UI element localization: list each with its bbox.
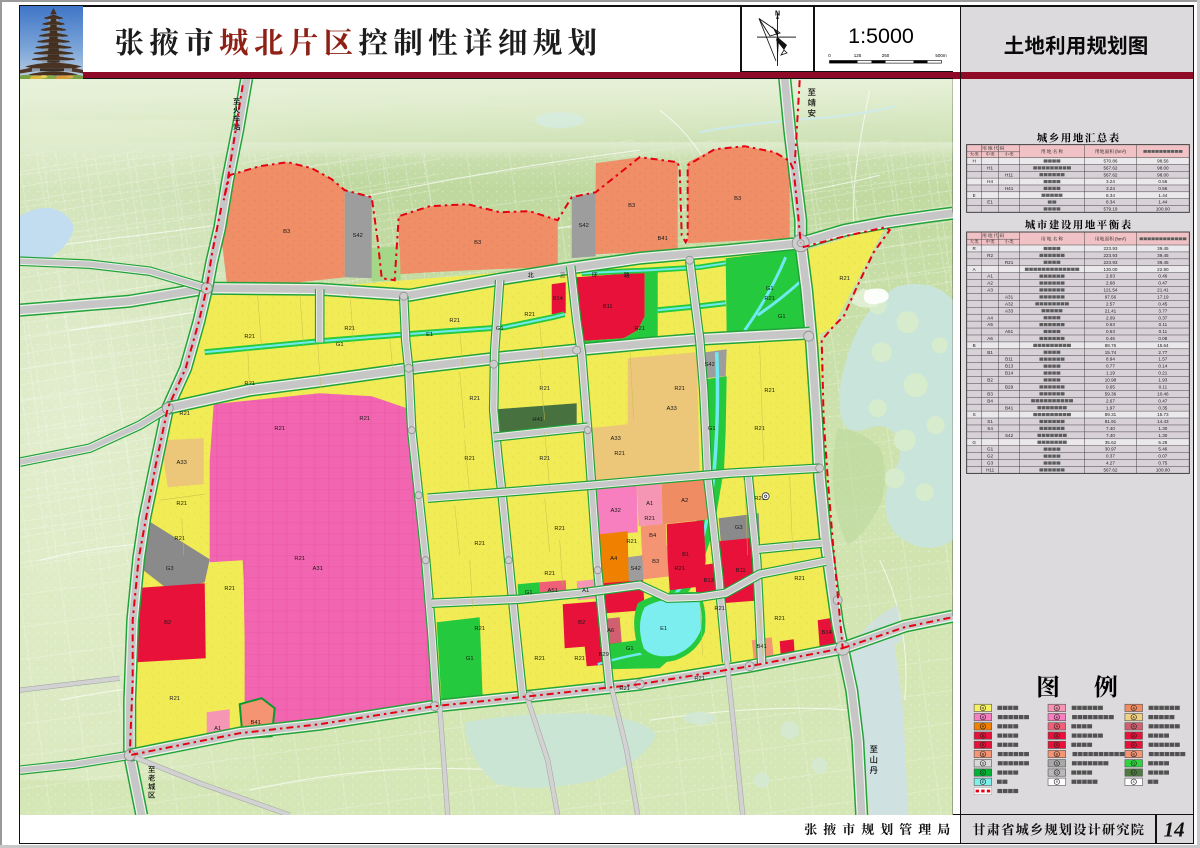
svg-text:0.77: 0.77 [1106, 364, 1115, 369]
svg-text:B41: B41 [757, 644, 767, 650]
svg-text:E1: E1 [426, 332, 433, 338]
svg-text:22.90: 22.90 [1157, 267, 1169, 272]
svg-text:S: S [973, 412, 976, 417]
svg-text:0.37: 0.37 [1106, 454, 1115, 459]
svg-text:R21: R21 [695, 676, 706, 682]
svg-text:(hm²): (hm²) [1115, 236, 1126, 241]
svg-text:(hm²): (hm²) [1115, 149, 1126, 154]
svg-text:G1: G1 [778, 314, 786, 320]
svg-text:4.27: 4.27 [1106, 460, 1115, 465]
svg-text:A51: A51 [1005, 329, 1014, 334]
svg-text:8.34: 8.34 [1106, 193, 1115, 198]
svg-text:39.45: 39.45 [1157, 246, 1169, 251]
svg-text:2.09: 2.09 [1106, 315, 1115, 320]
svg-text:B4: B4 [649, 533, 657, 539]
svg-text:B14: B14 [553, 296, 564, 302]
svg-text:H11: H11 [1005, 172, 1014, 177]
svg-text:R21: R21 [295, 556, 306, 562]
svg-text:A6: A6 [607, 628, 614, 634]
svg-text:567.62: 567.62 [1103, 467, 1117, 472]
svg-text:B1: B1 [987, 350, 993, 355]
svg-text:1.44: 1.44 [1158, 199, 1167, 204]
svg-text:A33: A33 [177, 460, 187, 466]
svg-text:R21: R21 [715, 606, 726, 612]
svg-text:R21: R21 [465, 456, 476, 462]
svg-text:G: G [972, 440, 976, 445]
svg-text:A6: A6 [987, 336, 993, 341]
svg-text:0.11: 0.11 [1159, 322, 1168, 327]
svg-text:B11: B11 [603, 304, 613, 310]
svg-text:14: 14 [1163, 817, 1184, 841]
svg-text:1.57: 1.57 [1158, 357, 1167, 362]
svg-text:125: 125 [854, 53, 862, 58]
svg-text:2.77: 2.77 [1158, 350, 1167, 355]
svg-text:H4: H4 [987, 179, 993, 184]
svg-text:A33: A33 [611, 436, 621, 442]
svg-text:H11: H11 [986, 467, 995, 472]
svg-text:B: B [973, 343, 976, 348]
svg-text:0.63: 0.63 [1106, 329, 1115, 334]
svg-text:88.76: 88.76 [1105, 343, 1117, 348]
svg-text:G: G [1055, 771, 1058, 775]
svg-text:R21: R21 [1005, 260, 1014, 265]
svg-text:E1: E1 [987, 199, 993, 204]
svg-text:1.93: 1.93 [1158, 377, 1167, 382]
svg-text:B41: B41 [658, 236, 668, 242]
svg-text:223.93: 223.93 [1103, 253, 1117, 258]
svg-text:R21: R21 [245, 334, 256, 340]
svg-text:0: 0 [828, 53, 831, 58]
svg-text:579.19: 579.19 [1103, 206, 1117, 211]
svg-text:0.14: 0.14 [1158, 364, 1167, 369]
svg-text:0.47: 0.47 [1158, 398, 1167, 403]
svg-text:G3: G3 [166, 566, 174, 572]
svg-text:A5: A5 [987, 322, 993, 327]
svg-text:G3: G3 [987, 460, 994, 465]
svg-text:R21: R21 [175, 536, 186, 542]
svg-text:7.40: 7.40 [1106, 426, 1115, 431]
svg-text:S4: S4 [987, 426, 993, 431]
svg-text:G1: G1 [496, 326, 504, 332]
svg-text:1:5000: 1:5000 [848, 24, 914, 48]
svg-text:E: E [973, 193, 976, 198]
svg-text:39.45: 39.45 [1157, 253, 1169, 258]
svg-text:R21: R21 [450, 318, 461, 324]
svg-text:A33: A33 [667, 406, 677, 412]
svg-text:2.67: 2.67 [1106, 398, 1115, 403]
svg-text:14.43: 14.43 [1157, 419, 1169, 424]
svg-text:0.75: 0.75 [1158, 460, 1167, 465]
svg-text:0.08: 0.08 [1158, 336, 1167, 341]
svg-text:0.63: 0.63 [1106, 322, 1115, 327]
svg-text:R21: R21 [345, 326, 356, 332]
svg-text:0.46: 0.46 [1106, 336, 1115, 341]
svg-text:1.30: 1.30 [1158, 433, 1167, 438]
svg-text:21.41: 21.41 [1105, 308, 1117, 313]
svg-text:100.00: 100.00 [1156, 467, 1170, 472]
svg-text:1.30: 1.30 [1158, 426, 1167, 431]
svg-text:R21: R21 [755, 426, 766, 432]
svg-text:15.73: 15.73 [1157, 412, 1169, 417]
svg-text:B29: B29 [599, 652, 609, 658]
svg-text:0.11: 0.11 [1159, 329, 1168, 334]
svg-text:223.93: 223.93 [1103, 260, 1117, 265]
svg-text:B2: B2 [987, 377, 993, 382]
svg-text:R: R [982, 706, 985, 710]
svg-text:R21: R21 [170, 696, 181, 702]
svg-text:B41: B41 [1005, 405, 1014, 410]
svg-text:A4: A4 [610, 556, 618, 562]
svg-text:7.40: 7.40 [1106, 433, 1115, 438]
svg-text:B11: B11 [736, 568, 746, 574]
svg-text:R21: R21 [475, 541, 486, 547]
svg-text:B2: B2 [164, 620, 171, 626]
svg-text:B13: B13 [704, 578, 714, 584]
svg-text:0.21: 0.21 [1158, 370, 1167, 375]
svg-text:39.45: 39.45 [1157, 260, 1169, 265]
svg-text:R21: R21 [795, 576, 806, 582]
svg-text:8.34: 8.34 [1106, 199, 1115, 204]
svg-text:S42: S42 [579, 223, 589, 229]
svg-text:A1: A1 [582, 588, 589, 594]
svg-text:R21: R21 [360, 416, 371, 422]
svg-text:15.64: 15.64 [1157, 343, 1169, 348]
svg-text:R2: R2 [987, 253, 993, 258]
svg-text:R21: R21 [615, 451, 626, 457]
svg-text:B2: B2 [578, 620, 585, 626]
svg-text:R21: R21 [627, 539, 638, 545]
svg-text:B3: B3 [474, 240, 481, 246]
svg-text:0.65: 0.65 [1106, 384, 1115, 389]
svg-text:R21: R21 [275, 426, 286, 432]
svg-text:8.94: 8.94 [1106, 357, 1115, 362]
svg-text:B14: B14 [822, 630, 833, 636]
svg-text:B11: B11 [1005, 357, 1013, 362]
svg-text:B4: B4 [987, 398, 993, 403]
svg-text:B13: B13 [1005, 364, 1014, 369]
svg-text:R21: R21 [525, 312, 536, 318]
svg-text:G1: G1 [987, 447, 994, 452]
svg-text:0.47: 0.47 [1158, 280, 1167, 285]
svg-text:30.97: 30.97 [1105, 447, 1117, 452]
svg-text:0.56: 0.56 [1158, 186, 1167, 191]
svg-text:A1: A1 [214, 726, 221, 732]
svg-text:H41: H41 [1005, 186, 1014, 191]
svg-text:R21: R21 [765, 388, 776, 394]
svg-text:R21: R21 [775, 616, 786, 622]
svg-text:15.74: 15.74 [1105, 350, 1117, 355]
svg-text:R21: R21 [470, 396, 481, 402]
svg-text:B29: B29 [1005, 384, 1014, 389]
svg-text:B3: B3 [734, 196, 741, 202]
svg-text:G1: G1 [336, 342, 344, 348]
svg-text:G3: G3 [735, 525, 743, 531]
svg-text:2.68: 2.68 [1106, 280, 1115, 285]
svg-text:G: G [1132, 762, 1135, 766]
svg-text:G2: G2 [987, 454, 994, 459]
svg-text:R21: R21 [180, 411, 191, 417]
svg-text:130.00: 130.00 [1103, 267, 1117, 272]
svg-text:6.28: 6.28 [1158, 440, 1167, 445]
svg-text:0.46: 0.46 [1158, 274, 1167, 279]
svg-text:0.45: 0.45 [1158, 301, 1167, 306]
svg-text:A31: A31 [1005, 294, 1014, 299]
svg-text:G1: G1 [626, 646, 634, 652]
svg-text:1.44: 1.44 [1158, 193, 1167, 198]
svg-text:R21: R21 [540, 386, 551, 392]
svg-text:S42: S42 [631, 566, 641, 572]
svg-text:R21: R21 [635, 326, 646, 332]
svg-text:10.98: 10.98 [1105, 377, 1117, 382]
svg-text:S42: S42 [1005, 433, 1014, 438]
svg-text:R21: R21 [545, 571, 556, 577]
svg-text:G1: G1 [708, 426, 716, 432]
svg-text:R21: R21 [645, 516, 656, 522]
svg-text:97.56: 97.56 [1105, 294, 1117, 299]
svg-text:1.97: 1.97 [1106, 405, 1115, 410]
svg-text:500m: 500m [935, 53, 947, 58]
svg-text:S42: S42 [353, 233, 363, 239]
svg-text:98.00: 98.00 [1157, 172, 1169, 177]
svg-text:0.07: 0.07 [1158, 454, 1167, 459]
svg-text:R21: R21 [555, 526, 566, 532]
svg-text:0.37: 0.37 [1158, 315, 1167, 320]
svg-text:21.41: 21.41 [1157, 287, 1169, 292]
svg-text:100.00: 100.00 [1156, 206, 1170, 211]
svg-text:A32: A32 [611, 508, 621, 514]
svg-text:A3: A3 [987, 287, 993, 292]
svg-text:0.35: 0.35 [1158, 405, 1167, 410]
svg-text:98.00: 98.00 [1157, 165, 1169, 170]
svg-text:3.77: 3.77 [1158, 308, 1167, 313]
svg-text:A32: A32 [1005, 301, 1014, 306]
svg-text:89.31: 89.31 [1105, 412, 1117, 417]
svg-text:R21: R21 [535, 656, 546, 662]
svg-text:121.54: 121.54 [1103, 287, 1117, 292]
svg-text:17.19: 17.19 [1157, 294, 1169, 299]
svg-text:A51: A51 [548, 588, 558, 594]
svg-text:A31: A31 [313, 566, 323, 572]
svg-text:1.19: 1.19 [1106, 370, 1115, 375]
svg-text:R21: R21 [765, 296, 776, 302]
svg-text:2.63: 2.63 [1106, 274, 1115, 279]
svg-text:5.46: 5.46 [1158, 447, 1167, 452]
svg-text:R21: R21 [675, 386, 686, 392]
svg-text:R21: R21 [540, 456, 551, 462]
svg-text:3.24: 3.24 [1106, 186, 1115, 191]
svg-text:S1: S1 [987, 419, 993, 424]
svg-text:G1: G1 [525, 590, 533, 596]
svg-text:A1: A1 [987, 274, 993, 279]
svg-text:567.62: 567.62 [1103, 172, 1117, 177]
svg-text:R21: R21 [675, 566, 686, 572]
svg-text:59.36: 59.36 [1105, 391, 1117, 396]
svg-text:G1: G1 [466, 656, 474, 662]
svg-text:A2: A2 [681, 498, 688, 504]
svg-text:R21: R21 [225, 586, 236, 592]
svg-text:B3: B3 [652, 559, 659, 565]
svg-text:570.86: 570.86 [1103, 158, 1117, 163]
svg-text:2.57: 2.57 [1106, 301, 1115, 306]
svg-text:B1: B1 [682, 552, 689, 558]
svg-text:R21: R21 [475, 626, 486, 632]
svg-text:B41: B41 [251, 720, 261, 726]
svg-text:E1: E1 [660, 626, 667, 632]
svg-text:B3: B3 [628, 203, 635, 209]
svg-text:3.24: 3.24 [1106, 179, 1115, 184]
svg-text:R21: R21 [177, 501, 188, 507]
svg-text:567.62: 567.62 [1103, 165, 1117, 170]
svg-text:R21: R21 [620, 686, 631, 692]
svg-text:9: 9 [1056, 780, 1058, 784]
svg-text:S42: S42 [705, 362, 715, 368]
svg-text:G: G [982, 771, 985, 775]
svg-text:B3: B3 [987, 391, 993, 396]
svg-text:H1: H1 [987, 165, 993, 170]
svg-text:A4: A4 [987, 315, 993, 320]
svg-text:A1: A1 [646, 501, 653, 507]
svg-text:223.93: 223.93 [1103, 246, 1117, 251]
svg-text:G1: G1 [766, 286, 774, 292]
svg-text:H41: H41 [533, 417, 544, 423]
svg-text:B14: B14 [1005, 370, 1014, 375]
svg-text:81.91: 81.91 [1105, 419, 1117, 424]
svg-text:A33: A33 [1005, 308, 1014, 313]
svg-text:B3: B3 [283, 229, 290, 235]
svg-text:H: H [1132, 771, 1135, 775]
svg-text:H: H [972, 158, 975, 163]
svg-text:0.11: 0.11 [1159, 384, 1168, 389]
svg-text:R21: R21 [575, 656, 586, 662]
svg-text:98.56: 98.56 [1157, 158, 1169, 163]
svg-text:0.56: 0.56 [1158, 179, 1167, 184]
svg-text:A2: A2 [987, 280, 993, 285]
svg-text:35.62: 35.62 [1105, 440, 1117, 445]
svg-text:250: 250 [882, 53, 890, 58]
svg-text:R21: R21 [840, 276, 851, 282]
svg-text:10.46: 10.46 [1157, 391, 1169, 396]
